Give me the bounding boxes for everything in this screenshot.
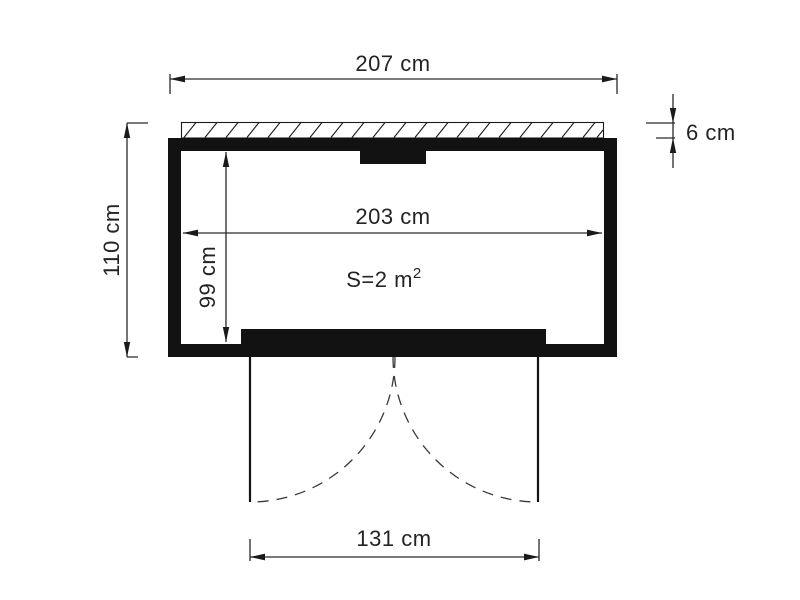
floor-plan-canvas: 207 cm 110 cm 6 cm 203 cm 99 cm S=2 m2 1…: [0, 0, 800, 600]
dim-arrow-left: [170, 76, 185, 83]
dim-arrow-right: [602, 76, 617, 83]
dim-line-roof-edge: [646, 94, 675, 168]
roof-edge-hatch: [182, 123, 604, 139]
dimension-label-inner-width: 203 cm: [355, 204, 430, 229]
door-panel: [241, 329, 546, 344]
dim-arrow-right: [587, 230, 602, 237]
roof-hatch-outline: [182, 123, 604, 139]
dimension-roof-edge: 6 cm: [646, 94, 736, 168]
dim-line-overall-width: [170, 74, 617, 94]
dim-arrow-up: [124, 123, 130, 138]
top-wall-block: [360, 151, 426, 164]
dimension-overall-width: 207 cm: [170, 51, 617, 94]
dim-arrow-up: [670, 138, 676, 153]
dimension-overall-depth: 110 cm: [99, 123, 148, 357]
area-label-exponent: 2: [413, 265, 422, 282]
structure-walls: [168, 138, 617, 357]
double-door-swing: [250, 357, 538, 502]
dim-arrow-down: [124, 342, 130, 357]
floor-plan-drawing: 207 cm 110 cm 6 cm 203 cm 99 cm S=2 m2 1…: [0, 0, 800, 600]
dim-arrow-down: [223, 327, 229, 342]
dim-arrow-left: [250, 554, 265, 561]
door-swing-arc-right: [393, 357, 538, 502]
dim-arrow-up: [223, 152, 229, 167]
dimension-label-inner-depth: 99 cm: [195, 246, 220, 308]
dimension-label-roof-edge: 6 cm: [686, 120, 736, 145]
dimension-label-overall-depth: 110 cm: [99, 203, 124, 277]
dimension-door-opening: 131 cm: [250, 526, 539, 561]
dimension-inner-depth: 99 cm: [195, 152, 229, 342]
dim-line-overall-depth: [127, 123, 148, 357]
door-swing-arc-left: [250, 357, 395, 502]
wall-outline: [168, 138, 617, 357]
dim-arrow-down: [670, 108, 676, 123]
area-label: S=2 m2: [346, 265, 422, 292]
dim-arrow-left: [183, 230, 198, 237]
dimension-label-door-opening: 131 cm: [356, 526, 431, 551]
dimension-inner-width: 203 cm: [183, 204, 602, 236]
area-label-main: S=2 m: [346, 267, 413, 292]
dim-arrow-right: [524, 554, 539, 561]
dimension-label-overall-width: 207 cm: [355, 51, 430, 76]
